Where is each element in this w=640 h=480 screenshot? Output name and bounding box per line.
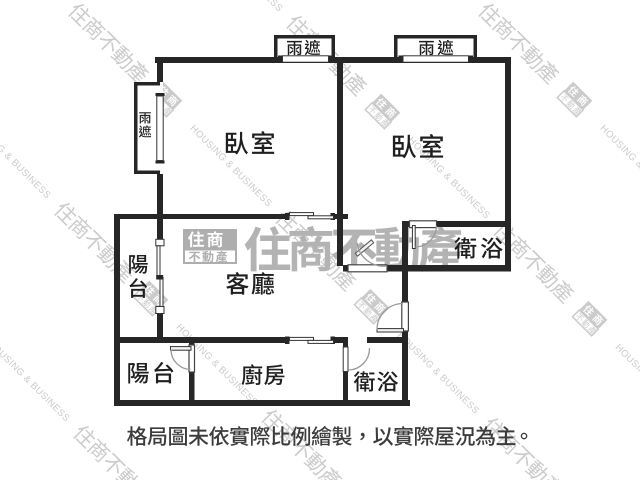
svg-text:HOUSING & BUSINESS: HOUSING & BUSINESS bbox=[0, 338, 72, 424]
svg-text:HOUSING & BUSINESS: HOUSING & BUSINESS bbox=[406, 135, 492, 221]
svg-text:HOUSING & BUSINESS: HOUSING & BUSINESS bbox=[198, 0, 284, 14]
svg-text:HOUSING & BUSINESS: HOUSING & BUSINESS bbox=[598, 123, 640, 209]
svg-text:HOUSING & BUSINESS: HOUSING & BUSINESS bbox=[174, 322, 260, 408]
svg-text:HOUSING & BUSINESS: HOUSING & BUSINESS bbox=[0, 0, 67, 2]
svg-text:HOUSING & BUSINESS: HOUSING & BUSINESS bbox=[613, 342, 640, 428]
svg-text:HOUSING & BUSINESS: HOUSING & BUSINESS bbox=[188, 123, 274, 209]
svg-text:HOUSING & BUSINESS: HOUSING & BUSINESS bbox=[0, 115, 53, 201]
svg-text:HOUSING & BUSINESS: HOUSING & BUSINESS bbox=[390, 0, 476, 2]
